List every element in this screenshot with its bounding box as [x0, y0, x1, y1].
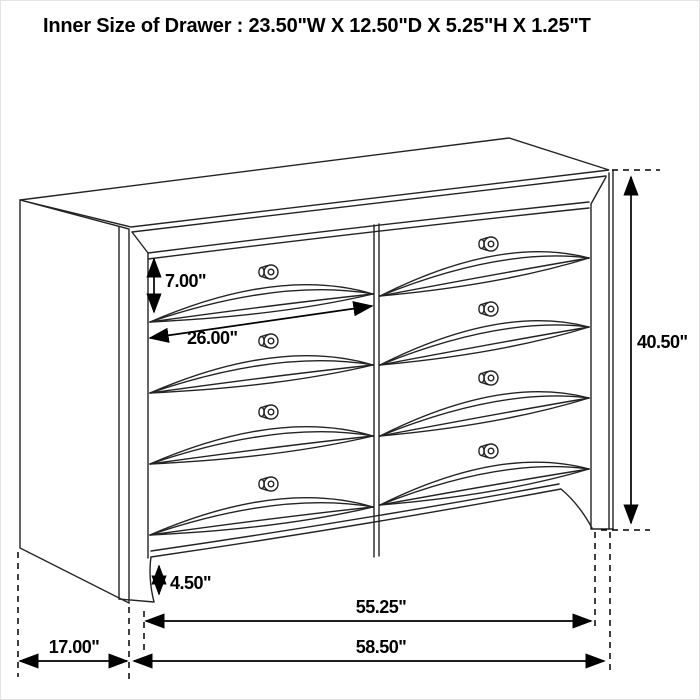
- front-frame-left-bevel: [132, 232, 148, 253]
- drawer-knob: [259, 405, 278, 419]
- dim-case-width: 55.25": [144, 532, 595, 651]
- dim-label-overall-width: 58.50": [356, 637, 407, 657]
- drawer-knob: [479, 444, 498, 458]
- dim-drawer-width: 26.00": [150, 306, 372, 348]
- drawer-knob: [479, 371, 498, 385]
- dim-base-clearance: 4.50": [159, 566, 211, 594]
- drawer-wave-mouldings: [150, 252, 589, 535]
- drawer-front-curve: [380, 252, 589, 296]
- dresser-diagram: Inner Size of Drawer : 23.50"W X 12.50"D…: [1, 1, 700, 700]
- diagram-title: Inner Size of Drawer : 23.50"W X 12.50"D…: [43, 15, 591, 37]
- front-frame-right-bevel: [591, 177, 606, 204]
- left-foot-inner-cut: [150, 557, 154, 602]
- dim-label-drawer-width: 26.00": [187, 328, 238, 348]
- apron-bottom-edge: [151, 489, 592, 557]
- drawer-knob: [479, 237, 498, 251]
- dresser-top-surface: [20, 138, 609, 227]
- drawer-knob: [259, 265, 278, 279]
- drawer-knob: [259, 477, 278, 491]
- dim-label-base-clearance: 4.50": [170, 573, 211, 593]
- drawer-front-curve: [380, 469, 589, 505]
- drawer-front-curve: [380, 321, 589, 365]
- drawer-front-curve: [380, 392, 589, 436]
- drawer-knob: [479, 302, 498, 316]
- dim-label-drawer-front-height: 7.00": [165, 271, 206, 291]
- dresser-left-side-panel: [20, 200, 129, 603]
- dim-label-case-width: 55.25": [356, 597, 407, 617]
- drawer-knob: [259, 334, 278, 348]
- dresser-drawing: [20, 138, 613, 603]
- dresser-dimension-diagram-page: Inner Size of Drawer : 23.50"W X 12.50"D…: [0, 0, 700, 700]
- dim-label-side-depth: 17.00": [49, 637, 100, 657]
- dim-label-overall-height: 40.50": [637, 332, 688, 352]
- dim-overall-height: 40.50": [601, 170, 688, 530]
